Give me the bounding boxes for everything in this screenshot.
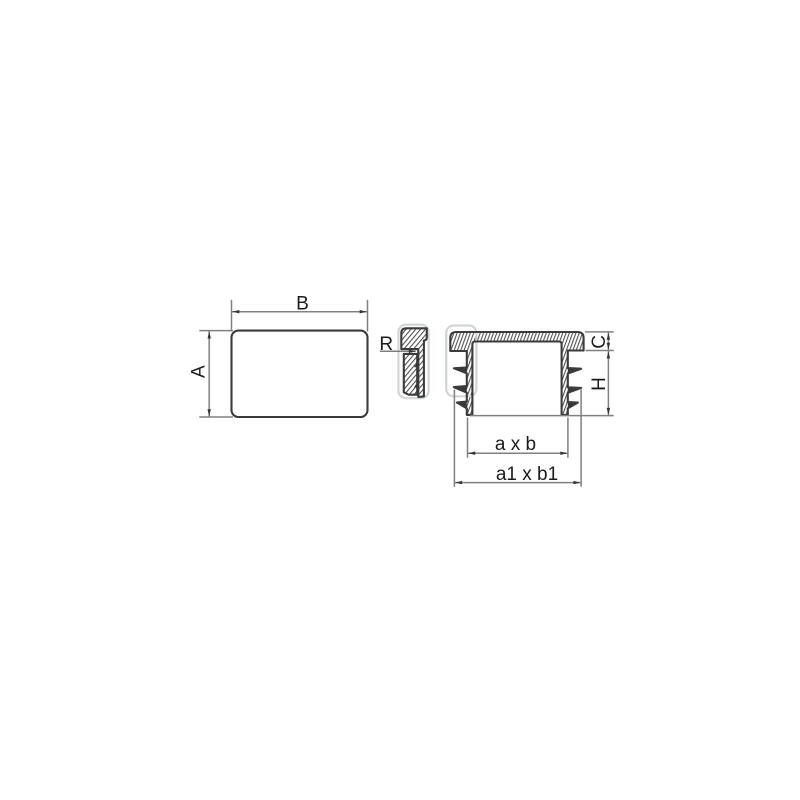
svg-text:H: H xyxy=(589,377,610,391)
svg-text:B: B xyxy=(296,293,309,314)
svg-text:a x b: a x b xyxy=(495,434,536,455)
svg-text:R: R xyxy=(379,334,393,355)
svg-text:C: C xyxy=(589,335,610,349)
svg-text:a1 x b1: a1 x b1 xyxy=(496,464,558,485)
svg-text:A: A xyxy=(189,365,210,378)
